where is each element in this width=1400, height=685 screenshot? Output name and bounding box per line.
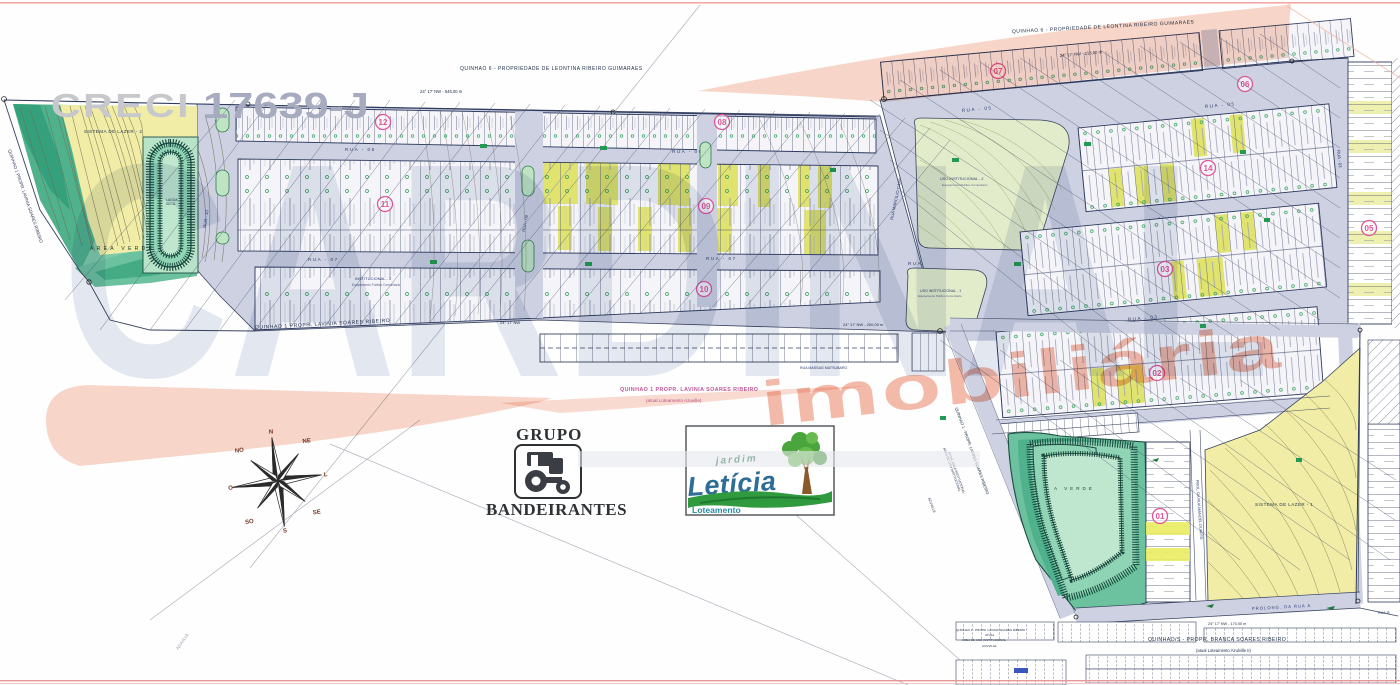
svg-text:BANDEIRANTES: BANDEIRANTES bbox=[486, 500, 627, 519]
svg-text:A VERDE: A VERDE bbox=[1054, 486, 1095, 491]
svg-text:05: 05 bbox=[1365, 224, 1374, 233]
svg-text:24° 17' NW - 170,00 m: 24° 17' NW - 170,00 m bbox=[1208, 622, 1246, 626]
svg-text:(atual Loteamento Azulville I: (atual Loteamento Azulville II) bbox=[1196, 648, 1252, 653]
svg-text:RUA 'B': RUA 'B' bbox=[1378, 611, 1390, 615]
svg-text:SO: SO bbox=[245, 519, 255, 526]
svg-text:SISTEMA DE LAZER - 1: SISTEMA DE LAZER - 1 bbox=[1255, 502, 1313, 507]
svg-text:Loteamento: Loteamento bbox=[692, 505, 741, 515]
svg-text:ATUAL: ATUAL bbox=[985, 633, 995, 637]
svg-text:SE: SE bbox=[312, 509, 321, 516]
svg-text:QUINHAO/S - PROPR. BRANCA SOAR: QUINHAO/S - PROPR. BRANCA SOARES RIBEIRO bbox=[1148, 637, 1286, 643]
svg-text:QUINHAO 6 - PROPRIEDADE DE LEO: QUINHAO 6 - PROPRIEDADE DE LEONTINA RIBE… bbox=[460, 66, 643, 72]
svg-text:QUINHAO 1 - PROPR. LAVINIA SOA: QUINHAO 1 - PROPR. LAVINIA SOARES RIBEIR… bbox=[956, 628, 1026, 632]
svg-text:01: 01 bbox=[1156, 512, 1165, 521]
svg-text:24° 17' NW - 546,00 m: 24° 17' NW - 546,00 m bbox=[420, 89, 463, 94]
svg-text:S: S bbox=[283, 528, 288, 535]
svg-text:ACUVILLE: ACUVILLE bbox=[982, 644, 997, 648]
svg-text:AREA DE USO INSTITUCIONAL: AREA DE USO INSTITUCIONAL bbox=[962, 638, 1006, 642]
